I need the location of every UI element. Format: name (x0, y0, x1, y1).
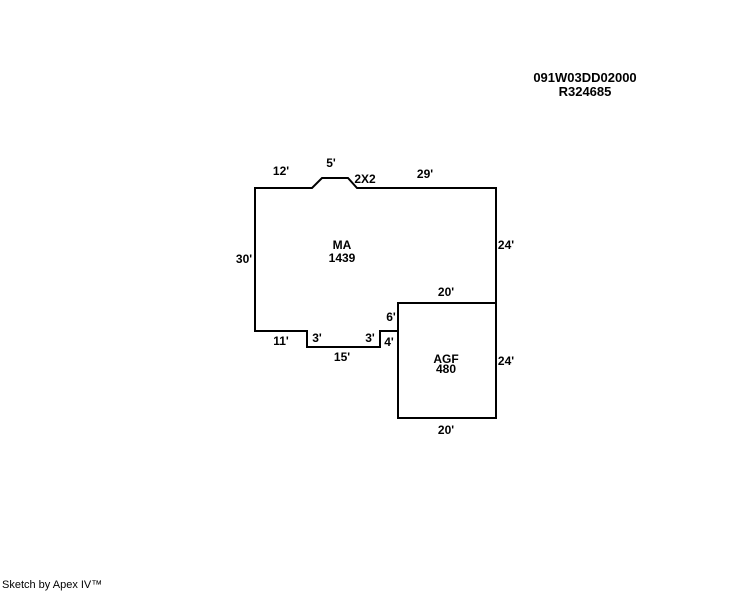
dim-right-24: 24' (498, 239, 514, 251)
dim-top-29: 29' (417, 168, 433, 180)
dim-bay-5: 5' (326, 157, 336, 169)
dim-step-3-left: 3' (312, 332, 322, 344)
main-area-sqft: 1439 (329, 252, 356, 265)
dim-step-3-right: 3' (365, 332, 375, 344)
dim-agf-right-24: 24' (498, 355, 514, 367)
dim-agf-top-20: 20' (438, 286, 454, 298)
dim-agf-bottom-20: 20' (438, 424, 454, 436)
agf-area-sqft: 480 (433, 364, 458, 374)
floor-plan-sketch (0, 0, 744, 595)
dim-top-12: 12' (273, 165, 289, 177)
dim-step-6: 6' (386, 311, 396, 323)
main-area-outline (255, 178, 496, 347)
dim-bottom-15: 15' (334, 351, 350, 363)
apex-credit: Sketch by Apex IV™ (2, 579, 102, 591)
dim-bottom-11: 11' (273, 335, 289, 347)
agf-area-label: AGF 480 (433, 354, 458, 374)
dim-left-30: 30' (236, 253, 252, 265)
dim-bottom-4: 4' (384, 336, 394, 348)
dim-bay-2x2: 2X2 (354, 173, 375, 185)
main-area-label: MA 1439 (329, 239, 356, 265)
property-sketch-page: 091W03DD02000 R324685 12' 5' 2X2 29' 24'… (0, 0, 744, 595)
